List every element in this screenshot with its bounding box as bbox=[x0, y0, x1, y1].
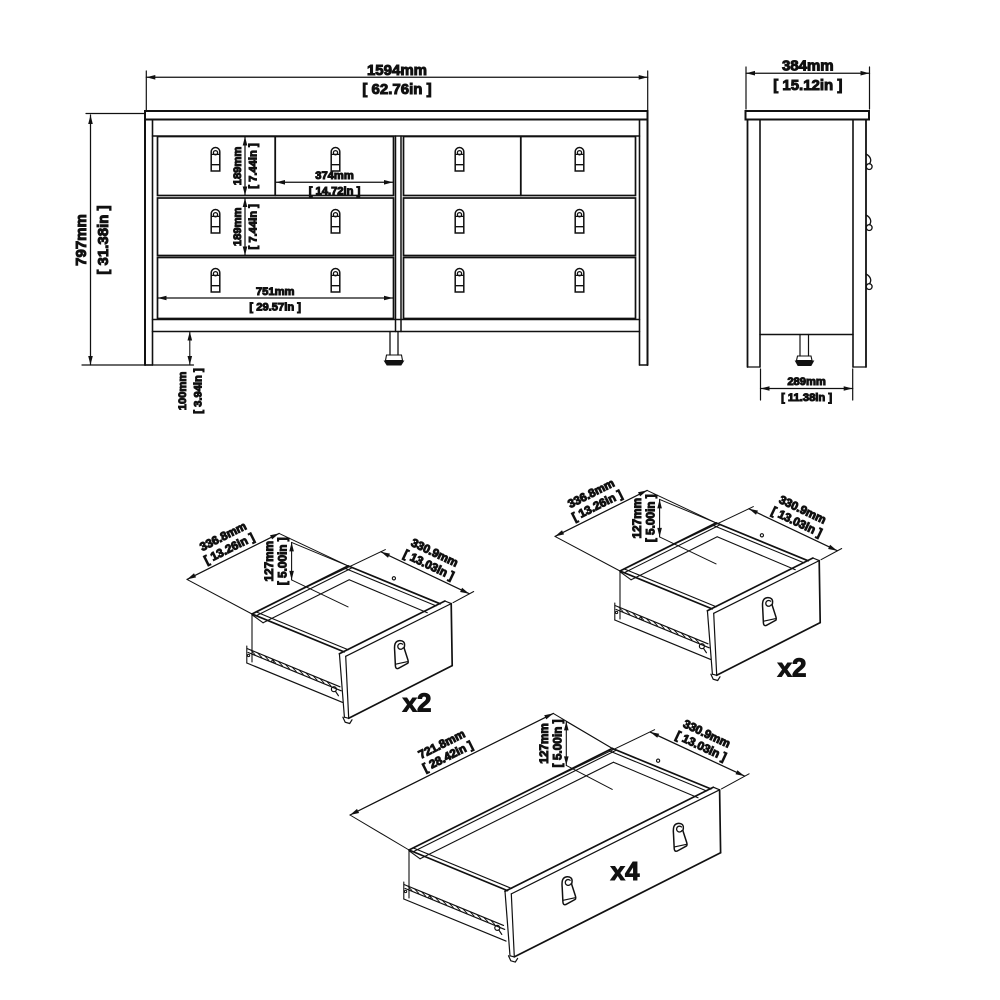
svg-text:[ 7.44in ]: [ 7.44in ] bbox=[248, 204, 260, 250]
svg-text:189mm: 189mm bbox=[232, 207, 244, 246]
svg-text:127mm: 127mm bbox=[262, 541, 276, 582]
svg-text:[ 15.12in ]: [ 15.12in ] bbox=[773, 77, 842, 94]
svg-text:189mm: 189mm bbox=[232, 147, 244, 186]
svg-text:[ 3.94in ]: [ 3.94in ] bbox=[192, 368, 204, 414]
svg-text:[ 5.00in ]: [ 5.00in ] bbox=[276, 537, 290, 585]
svg-text:[ 5.00in ]: [ 5.00in ] bbox=[550, 719, 564, 767]
svg-text:374mm: 374mm bbox=[315, 170, 354, 182]
svg-text:797mm: 797mm bbox=[73, 214, 90, 266]
svg-text:127mm: 127mm bbox=[537, 723, 551, 764]
svg-text:x4: x4 bbox=[611, 856, 640, 886]
svg-text:[ 62.76in ]: [ 62.76in ] bbox=[362, 81, 431, 98]
svg-text:[ 7.44in ]: [ 7.44in ] bbox=[248, 143, 260, 189]
svg-text:100mm: 100mm bbox=[177, 372, 189, 411]
svg-text:289mm: 289mm bbox=[787, 376, 826, 388]
svg-text:[ 11.38in ]: [ 11.38in ] bbox=[781, 392, 832, 404]
svg-text:[ 5.00in ]: [ 5.00in ] bbox=[644, 494, 658, 542]
svg-text:x2: x2 bbox=[403, 688, 432, 718]
svg-text:[ 31.38in ]: [ 31.38in ] bbox=[95, 205, 112, 274]
svg-text:127mm: 127mm bbox=[630, 498, 644, 539]
svg-text:x2: x2 bbox=[778, 653, 807, 683]
svg-text:[ 29.57in ]: [ 29.57in ] bbox=[249, 301, 301, 313]
svg-text:[ 14.72in ]: [ 14.72in ] bbox=[309, 186, 361, 198]
svg-text:384mm: 384mm bbox=[782, 58, 834, 75]
svg-text:1594mm: 1594mm bbox=[367, 62, 427, 79]
svg-text:751mm: 751mm bbox=[256, 286, 295, 298]
